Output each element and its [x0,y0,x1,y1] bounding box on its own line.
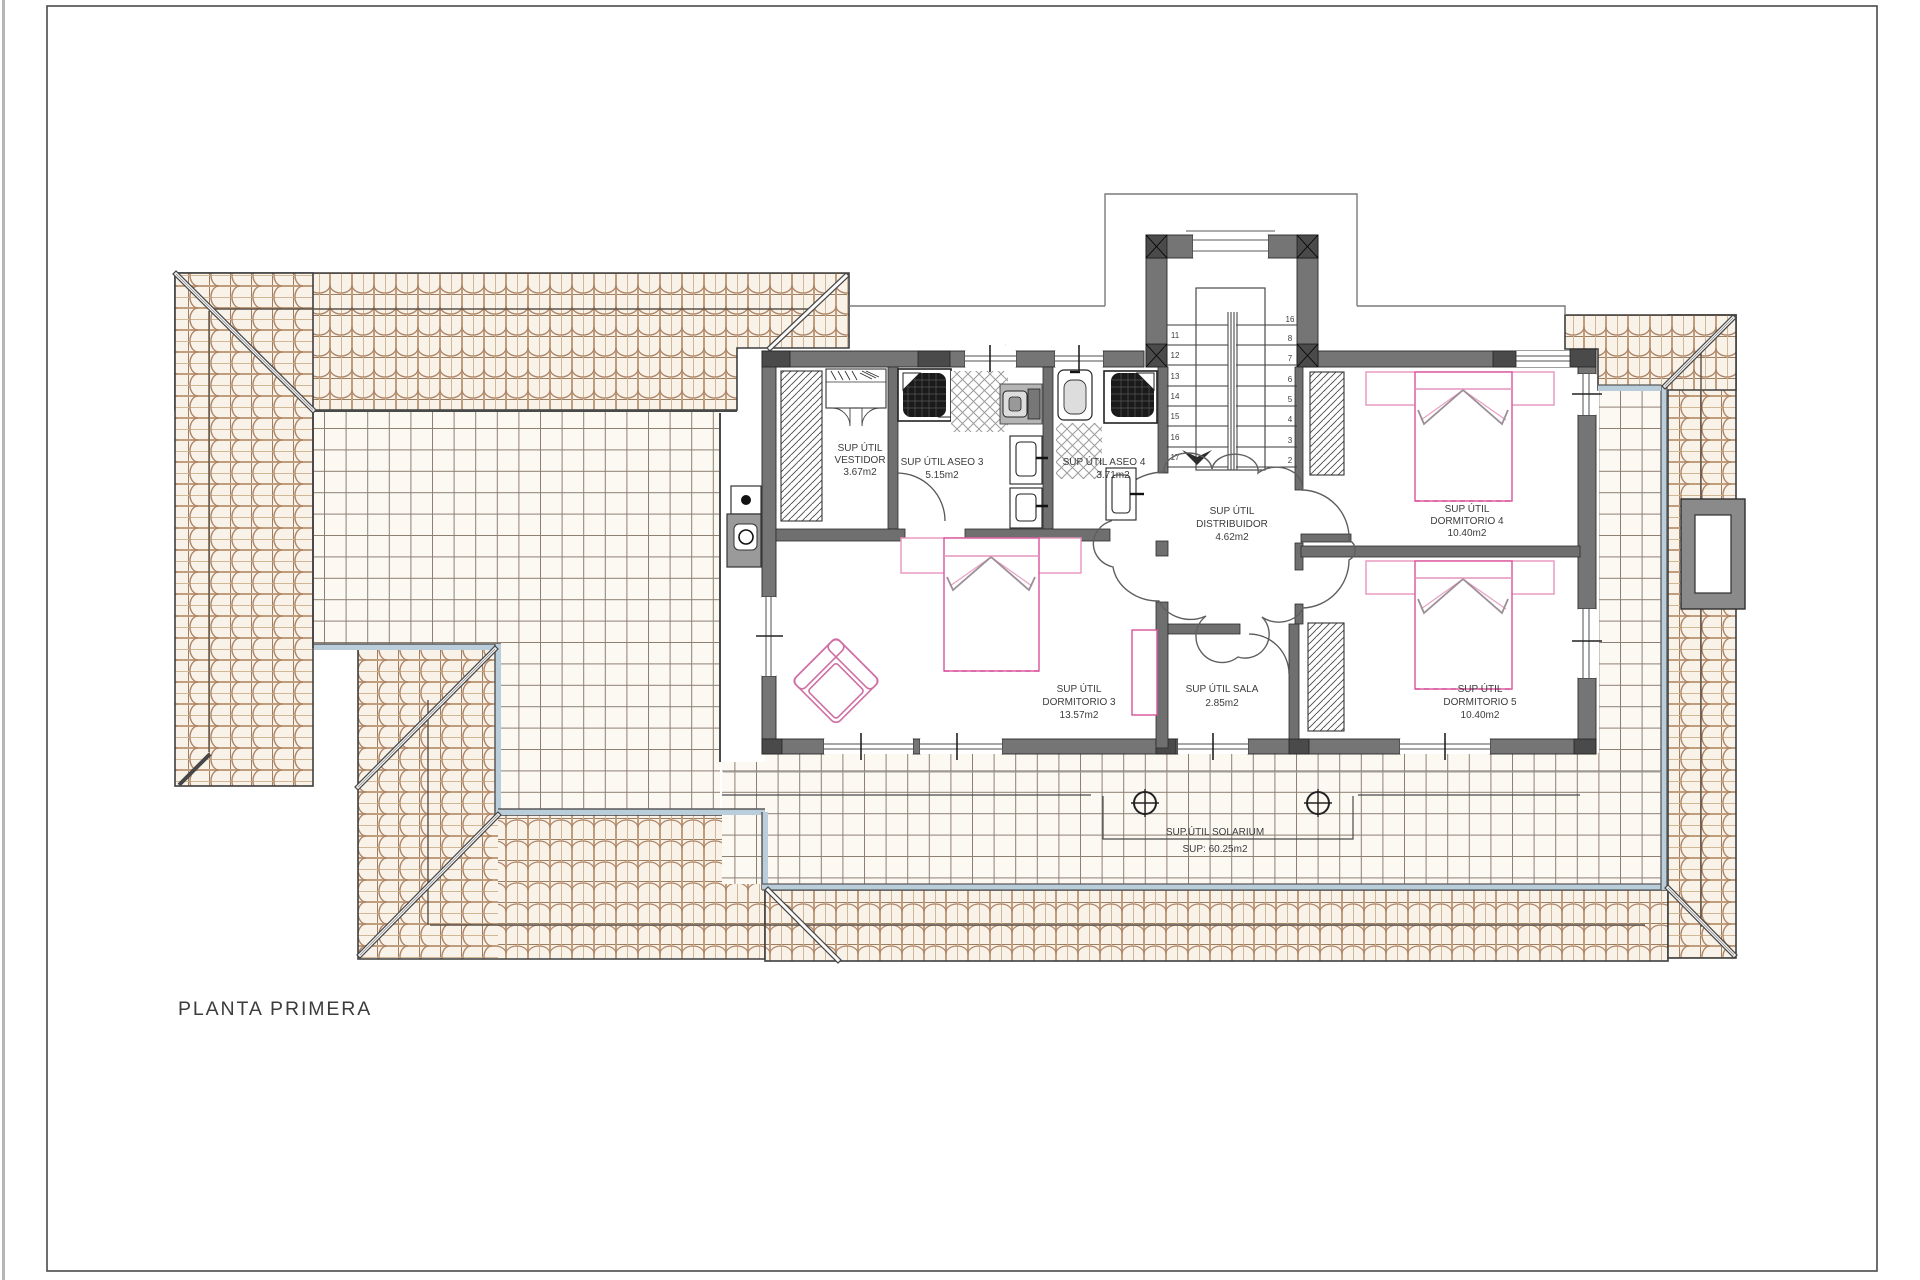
svg-text:DORMITORIO 5: DORMITORIO 5 [1443,697,1517,708]
svg-text:VESTIDOR: VESTIDOR [834,455,885,466]
svg-text:2.85m2: 2.85m2 [1205,698,1239,709]
svg-text:15: 15 [1171,412,1180,421]
svg-text:SUP ÚTIL: SUP ÚTIL [1458,682,1503,695]
svg-text:7: 7 [1288,354,1293,363]
svg-text:SUP ÚTIL: SUP ÚTIL [1210,504,1255,517]
svg-text:6: 6 [1288,375,1293,384]
svg-text:11: 11 [1171,331,1180,340]
svg-text:8: 8 [1288,334,1293,343]
svg-text:SUP ÚTIL: SUP ÚTIL [1445,502,1490,515]
svg-text:SUP ÚTIL: SUP ÚTIL [1057,682,1102,695]
svg-text:4: 4 [1288,415,1293,424]
svg-text:SUP ÚTIL: SUP ÚTIL [838,441,883,454]
svg-text:2: 2 [1288,456,1293,465]
svg-text:3.71m2: 3.71m2 [1096,470,1130,481]
svg-text:13: 13 [1171,372,1180,381]
svg-text:SUP ÚTIL ASEO 4: SUP ÚTIL ASEO 4 [1063,455,1146,468]
svg-text:SUP.ÚTIL SOLARIUM: SUP.ÚTIL SOLARIUM [1166,825,1264,838]
svg-text:PLANTA PRIMERA: PLANTA PRIMERA [178,998,372,1020]
svg-text:5.15m2: 5.15m2 [925,470,959,481]
svg-text:16: 16 [1286,315,1295,324]
svg-text:13.57m2: 13.57m2 [1060,710,1099,721]
svg-text:12: 12 [1171,351,1180,360]
svg-text:SUP ÚTIL ASEO 3: SUP ÚTIL ASEO 3 [901,455,984,468]
svg-text:DISTRIBUIDOR: DISTRIBUIDOR [1196,519,1268,530]
svg-text:4.62m2: 4.62m2 [1215,532,1249,543]
svg-text:SUP: 60.25m2: SUP: 60.25m2 [1182,844,1247,855]
svg-text:3.67m2: 3.67m2 [843,467,877,478]
svg-text:10.40m2: 10.40m2 [1461,710,1500,721]
svg-text:16: 16 [1171,433,1180,442]
svg-text:DORMITORIO 3: DORMITORIO 3 [1042,697,1116,708]
svg-text:5: 5 [1288,395,1293,404]
svg-text:3: 3 [1288,436,1293,445]
svg-text:DORMITORIO 4: DORMITORIO 4 [1430,516,1504,527]
svg-text:SUP ÚTIL SALA: SUP ÚTIL SALA [1186,682,1259,695]
svg-text:10.40m2: 10.40m2 [1448,528,1487,539]
svg-text:14: 14 [1171,392,1180,401]
